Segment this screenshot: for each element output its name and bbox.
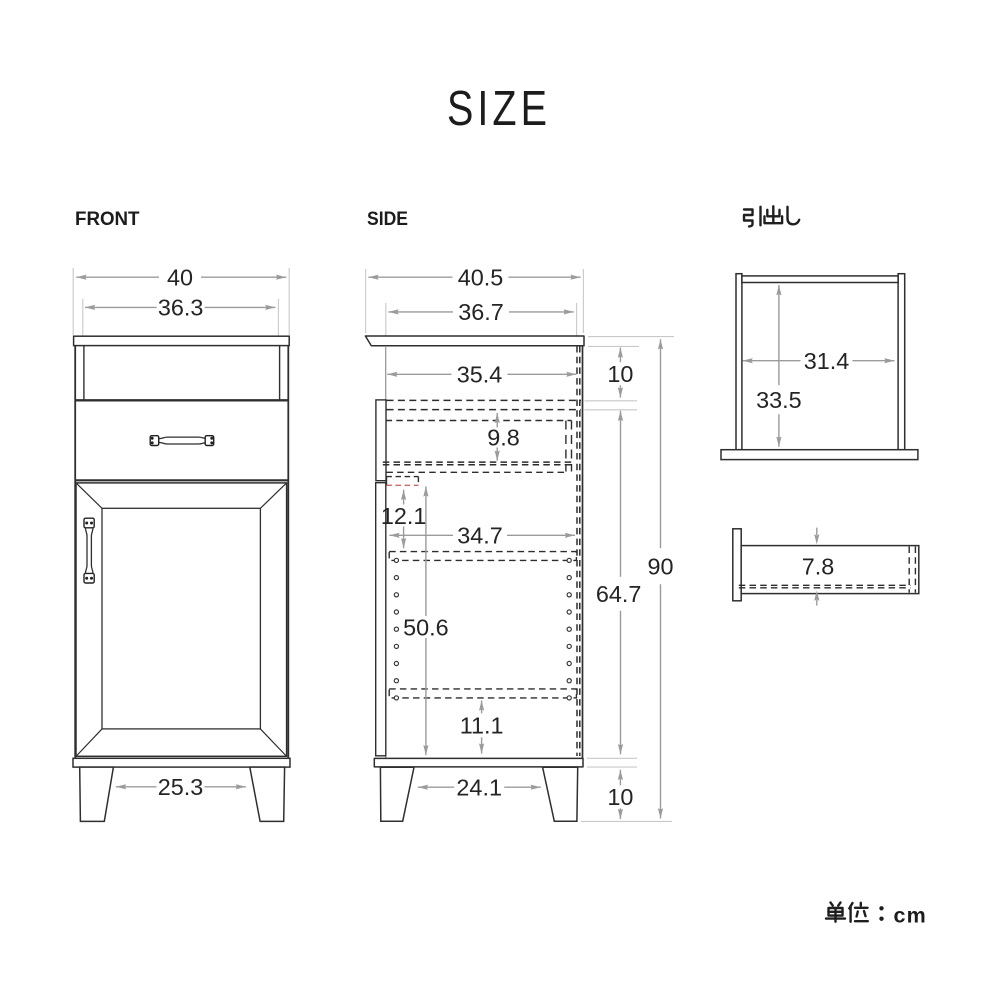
svg-text:10: 10 [607, 784, 633, 810]
svg-text:7.8: 7.8 [802, 554, 835, 580]
svg-text:34.7: 34.7 [457, 523, 503, 549]
svg-text:11.1: 11.1 [460, 713, 504, 739]
svg-text:FRONT: FRONT [75, 208, 140, 230]
svg-text:35.4: 35.4 [457, 362, 503, 388]
svg-text:64.7: 64.7 [596, 581, 642, 607]
svg-text:90: 90 [647, 554, 673, 580]
svg-text:40: 40 [167, 265, 193, 291]
svg-text:36.7: 36.7 [458, 299, 504, 325]
svg-text:10: 10 [607, 361, 633, 387]
svg-text:25.3: 25.3 [158, 774, 204, 800]
svg-text:31.4: 31.4 [804, 348, 850, 374]
svg-text:SIDE: SIDE [367, 208, 408, 230]
svg-text:SIZE: SIZE [447, 82, 551, 136]
svg-text:50.6: 50.6 [403, 614, 449, 640]
svg-text:12.1: 12.1 [381, 503, 427, 529]
svg-text:40.5: 40.5 [458, 265, 504, 291]
svg-text:cm: cm [894, 904, 927, 928]
svg-text:33.5: 33.5 [756, 387, 802, 413]
svg-text:24.1: 24.1 [456, 775, 502, 801]
svg-text:9.8: 9.8 [487, 425, 520, 451]
svg-text:36.3: 36.3 [158, 295, 204, 321]
